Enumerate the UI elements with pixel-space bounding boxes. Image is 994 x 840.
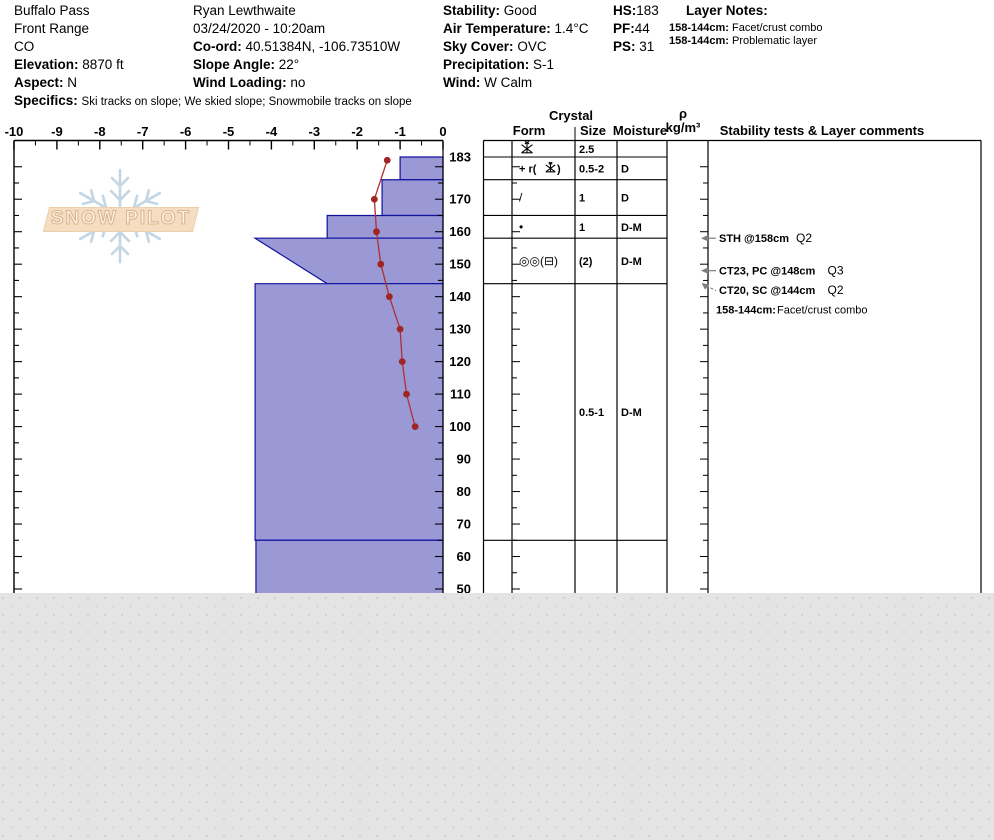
temperature-point	[399, 358, 406, 365]
svg-text:0.5-2: 0.5-2	[579, 163, 604, 175]
svg-text:+ r(: + r(	[519, 163, 537, 175]
temperature-point	[403, 391, 410, 398]
layer-bars	[255, 157, 443, 593]
test-arrowhead	[701, 267, 708, 273]
svg-text:60: 60	[457, 549, 471, 564]
svg-text:-5: -5	[223, 124, 235, 139]
svg-text:D-M: D-M	[621, 222, 642, 234]
test-score: Q3	[828, 264, 844, 278]
svg-text:-1: -1	[394, 124, 406, 139]
svg-text:150: 150	[449, 257, 471, 272]
layer-bar	[327, 215, 443, 238]
layer-bar	[400, 157, 443, 180]
svg-text:/: /	[519, 191, 523, 205]
layer-bar	[382, 180, 443, 216]
svg-text:70: 70	[457, 517, 471, 532]
svg-text:160: 160	[449, 224, 471, 239]
svg-text:D-M: D-M	[621, 407, 642, 419]
depth-axis-labels: 1831701601501401301201101009080706050	[449, 150, 471, 594]
temperature-point	[412, 423, 419, 430]
svg-text:◎◎(⊟): ◎◎(⊟)	[519, 254, 558, 268]
gray-footer	[0, 593, 994, 840]
svg-text:-4: -4	[266, 124, 278, 139]
layer-bar	[255, 238, 443, 283]
svg-text:90: 90	[457, 452, 471, 467]
temperature-point	[384, 157, 391, 164]
test-arrowhead	[701, 235, 708, 241]
temperature-point	[373, 228, 380, 235]
svg-text:0.5-1: 0.5-1	[579, 407, 604, 419]
test-score: Q2	[828, 283, 844, 297]
layer-bar	[255, 284, 443, 541]
svg-text:0: 0	[439, 124, 446, 139]
test-score: Q2	[796, 231, 812, 245]
svg-text:110: 110	[450, 387, 471, 402]
temperature-point	[371, 196, 378, 203]
form-table-content: 2.50.5-2D+ r()1D/1D-M•(2)D-M◎◎(⊟)0.5-1D-…	[519, 141, 642, 419]
svg-text:-8: -8	[94, 124, 106, 139]
svg-text:D: D	[621, 163, 629, 175]
svg-text:50: 50	[457, 581, 471, 593]
stability-tests: STH @158cmQ2CT23, PC @148cmQ3CT20, SC @1…	[701, 231, 867, 316]
test-label: STH @158cm	[719, 233, 789, 245]
svg-text:-6: -6	[180, 124, 192, 139]
svg-text:•: •	[519, 220, 523, 234]
svg-text:(2): (2)	[579, 256, 593, 268]
svg-text:1: 1	[579, 222, 585, 234]
svg-text:130: 130	[449, 322, 471, 337]
temperature-point	[397, 326, 404, 333]
temperature-point	[386, 293, 393, 300]
temperature-point	[377, 261, 384, 268]
svg-text:183: 183	[449, 150, 471, 165]
svg-text:-7: -7	[137, 124, 149, 139]
svg-text:-3: -3	[309, 124, 321, 139]
test-label: CT23, PC @148cm	[719, 266, 816, 278]
svg-text:140: 140	[449, 289, 471, 304]
svg-text:-2: -2	[351, 124, 363, 139]
snow-profile-chart: -10-9-8-7-6-5-4-3-2-10183170160150140130…	[0, 0, 994, 593]
svg-text:-10: -10	[5, 124, 24, 139]
svg-text:D: D	[621, 193, 629, 205]
svg-text:80: 80	[457, 484, 471, 499]
svg-text:): )	[557, 163, 561, 175]
snowpit-report: { "header": { "location": { "line1": "Bu…	[0, 0, 994, 840]
svg-text:100: 100	[449, 419, 471, 434]
layer-comment-range: 158-144cm:	[716, 305, 776, 317]
svg-text:D-M: D-M	[621, 256, 642, 268]
svg-text:1: 1	[579, 193, 585, 205]
svg-text:2.5: 2.5	[579, 144, 594, 156]
svg-text:120: 120	[449, 354, 471, 369]
svg-text:170: 170	[449, 192, 471, 207]
test-label: CT20, SC @144cm	[719, 285, 816, 297]
temp-axis-labels: -10-9-8-7-6-5-4-3-2-10	[5, 124, 447, 139]
layer-bar	[256, 540, 443, 593]
grid	[14, 127, 981, 593]
layer-comment-text: Facet/crust combo	[777, 305, 867, 317]
svg-text:-9: -9	[51, 124, 63, 139]
